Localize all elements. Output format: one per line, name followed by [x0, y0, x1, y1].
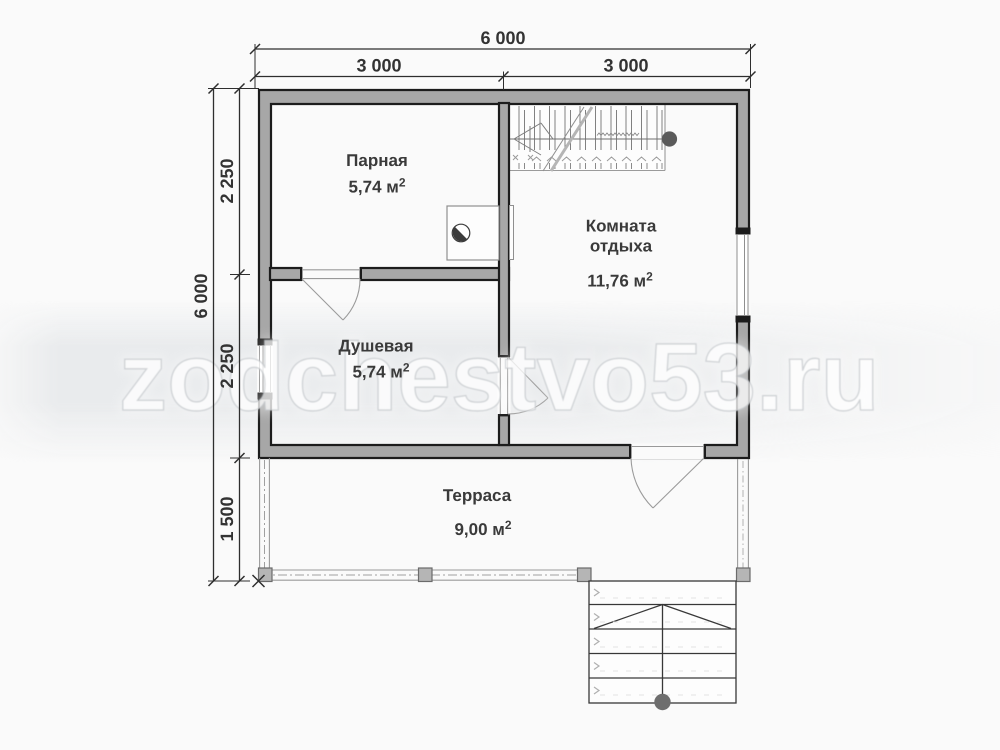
svg-text:3 000: 3 000	[356, 56, 401, 76]
svg-text:6 000: 6 000	[480, 28, 525, 48]
svg-text:2 250: 2 250	[217, 158, 237, 203]
svg-text:5,74 м2: 5,74 м2	[348, 176, 405, 197]
svg-text:6 000: 6 000	[191, 273, 211, 318]
svg-text:Парная: Парная	[346, 151, 408, 170]
svg-text:5,74 м2: 5,74 м2	[352, 361, 409, 382]
svg-text:отдыха: отдыха	[590, 237, 653, 256]
svg-text:2 250: 2 250	[217, 343, 237, 388]
svg-text:Терраса: Терраса	[443, 486, 512, 505]
svg-text:1 500: 1 500	[217, 496, 237, 541]
svg-text:Комната: Комната	[586, 217, 657, 236]
svg-text:11,76 м2: 11,76 м2	[587, 270, 653, 291]
svg-text:3 000: 3 000	[603, 56, 648, 76]
svg-text:9,00 м2: 9,00 м2	[454, 518, 511, 539]
svg-text:Душевая: Душевая	[339, 337, 414, 356]
